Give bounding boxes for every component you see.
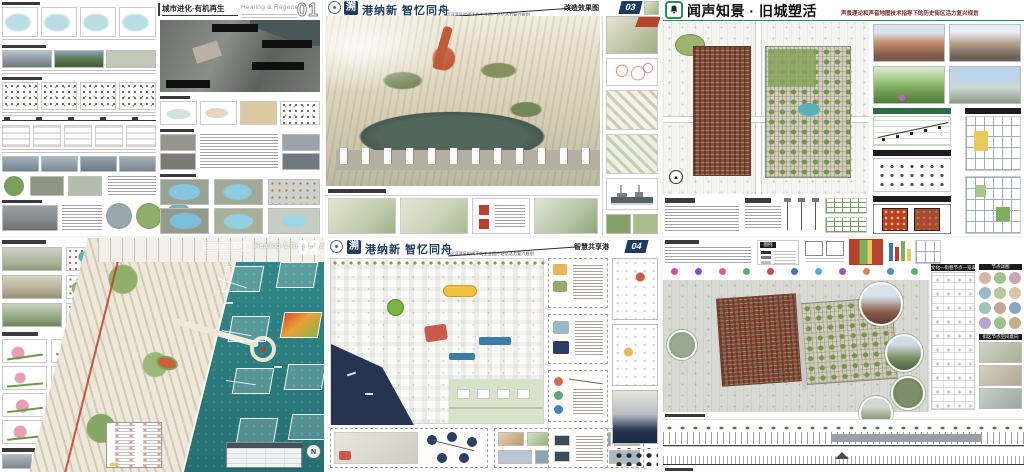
analysis-map-thumbnail: [2, 7, 38, 37]
site-highlight: [192, 40, 222, 63]
white-building: [477, 389, 490, 399]
map-pin: [815, 268, 822, 275]
map-pin: [887, 268, 894, 275]
board5-tag: 智慧共享港: [574, 242, 609, 252]
section-header: [2, 240, 46, 244]
title-divider: [158, 3, 160, 16]
node-circle: [979, 287, 991, 299]
detail-render-panel: [400, 198, 468, 234]
board5-title: 港纳新 智忆同舟: [365, 241, 453, 257]
street-network-map: [965, 176, 1021, 234]
mini-diagram: [95, 125, 123, 147]
city-view-sketch: [612, 258, 658, 320]
timeline-marker: [882, 138, 885, 141]
timeline-marker: [924, 129, 927, 132]
section-header: [2, 2, 40, 5]
timeline-line: [878, 122, 949, 138]
red-icon: [479, 219, 489, 229]
node-circle: [979, 272, 991, 284]
axon-thumb: [979, 342, 1022, 363]
screen-icon: [554, 435, 570, 446]
design-notes: [665, 206, 739, 232]
link-line: [569, 379, 603, 385]
axon-diagram: [606, 90, 658, 130]
lake-satellite-thumb: [160, 179, 209, 205]
industry-photo: [282, 153, 320, 170]
street-watercolor-photo: [949, 66, 1021, 104]
node-circle: [1009, 272, 1021, 284]
legend-swatch: [110, 463, 118, 466]
gate-callout-photo: [885, 334, 923, 372]
white-building: [497, 389, 510, 399]
detail-callout-heatmap: [280, 312, 323, 338]
node-circle: [994, 317, 1006, 329]
node-circle: [1009, 302, 1021, 314]
green-table: [825, 217, 867, 233]
persona-icon: [554, 391, 563, 400]
building-sketch: [498, 432, 524, 446]
ground-line: [663, 445, 1024, 446]
colored-plan-thumb: [849, 239, 883, 265]
diagram-icon: [553, 341, 569, 354]
section-header: [160, 174, 196, 177]
logo-dot: [333, 6, 336, 9]
section-header: [745, 198, 771, 203]
persona-icon: [554, 405, 563, 414]
panorama-photo: [2, 454, 32, 469]
highlight-parcel: [974, 131, 988, 151]
waterfront-towers: [340, 148, 590, 164]
tree-row: [331, 259, 545, 267]
section-sketch: [2, 366, 47, 390]
lake-satellite-thumb: [214, 208, 263, 234]
legend-title: 图例: [760, 242, 776, 248]
masterplan-drawing: ▲: [663, 22, 869, 194]
bamboo-watercolor-photo: [873, 66, 945, 104]
map-pin: [839, 268, 846, 275]
timeline-tick: [4, 117, 10, 121]
historic-block-west: [693, 46, 751, 176]
harbor-view-sketch: [612, 390, 658, 444]
timeline-tick: [36, 117, 42, 121]
north-arrow-icon: N: [306, 444, 321, 459]
node-circle: [979, 317, 991, 329]
building-photo: [2, 205, 58, 231]
screen-icon: [554, 451, 570, 462]
caption-text: [2, 39, 156, 42]
axon-header: 街区节点空间意向: [979, 334, 1022, 340]
zoning-map: [873, 204, 951, 234]
cargo-ship-icon: [609, 183, 655, 207]
house-sketch: [805, 241, 823, 256]
context-elevation-sketch: [663, 452, 1024, 466]
section-header: [2, 45, 46, 48]
diagram-notes: [573, 389, 603, 415]
waterfront-masterplan: 城市进化·有机再生 Healing & Regeneration 02 N: [98, 238, 324, 472]
dot-analysis-map: [2, 82, 38, 110]
sketch-diagram: [240, 101, 277, 125]
terrain-line: [7, 407, 43, 413]
indicator-list: [745, 206, 781, 228]
callout-label: [252, 62, 304, 70]
red-landmark: [424, 324, 448, 343]
board4-title-cn: 城市进化·有机再生: [204, 242, 250, 251]
red-icon: [479, 205, 489, 215]
node-circle: [1009, 317, 1021, 329]
icon-grid-header: [873, 150, 951, 156]
intro-paragraph: [665, 247, 751, 265]
street-sketch: [334, 432, 418, 464]
lake-map-thumb: [268, 179, 320, 205]
green-courtyard: [768, 49, 816, 87]
site-photo: [2, 50, 52, 68]
mini-diagram: [2, 125, 30, 147]
node-callout-photo: [667, 330, 697, 360]
board-3-soundscape-oldtown[interactable]: 闻声知景 · 旧城塑活 声景理论和声音地图技术指导下的历史街区活力复兴规划 ▲: [663, 0, 1024, 236]
diagram-notes: [573, 265, 603, 301]
legend-labels: [115, 425, 135, 467]
culture-table-body: [931, 272, 975, 410]
analysis-map-thumbnail: [119, 7, 156, 37]
detail-callout-plan: [236, 418, 279, 444]
red-axis-feature: [432, 26, 453, 71]
section-sketch: [2, 339, 47, 363]
greenery-thumb: [633, 214, 658, 234]
axon-thumb: [979, 365, 1022, 386]
satellite-thumbnail: [68, 176, 102, 196]
landscape-photo: [2, 247, 62, 271]
lake-satellite-thumb: [214, 179, 263, 205]
timeline-marker: [938, 126, 941, 129]
logo-frame: [665, 1, 683, 19]
street-watercolor-photo: [949, 24, 1021, 62]
board-4-healing-regeneration-sheet2[interactable]: 城市进化·有机再生 Healing & Regeneration 02 N: [0, 238, 324, 472]
sketch-diagram: [200, 101, 237, 125]
lamp-drawing: [801, 200, 802, 230]
anchor-ring-icon: [328, 1, 341, 14]
lamp-head: [812, 198, 819, 202]
caption-text: [2, 149, 156, 153]
nodes-header: 节点详图: [979, 264, 1022, 270]
street-scene-panel: [330, 428, 488, 468]
section-header: [328, 189, 386, 193]
diagram-notes: [576, 436, 603, 462]
node-circle: [994, 302, 1006, 314]
detail-callout-plan: [228, 316, 271, 342]
red-kiosk: [339, 451, 351, 460]
industry-photo: [160, 134, 196, 151]
timeline-tick: [132, 117, 138, 121]
indicator-table: [226, 442, 302, 468]
diagram-notes: [575, 321, 603, 357]
caption-text: [2, 112, 156, 116]
red-zone: [914, 208, 940, 231]
city-photo: [2, 156, 39, 172]
bar-chart-bar: [895, 247, 899, 261]
blue-label-chip: [449, 353, 475, 360]
sound-icon-grid: [873, 158, 951, 192]
device-diagram-panel: [548, 428, 608, 468]
section-header: [160, 96, 190, 99]
network-node: [447, 432, 457, 442]
greenery-thumb: [606, 214, 631, 234]
street-watercolor-photo: [873, 24, 945, 62]
icon-strip: [612, 448, 658, 466]
boat-mark: [274, 366, 282, 368]
node-circle: [994, 287, 1006, 299]
boat-mark: [365, 393, 373, 395]
board1-number: 01: [297, 0, 319, 21]
elevation-trees: [663, 424, 1024, 432]
column-divider: [602, 16, 603, 236]
mini-diagram: [64, 125, 92, 147]
lamp-head: [798, 198, 805, 202]
red-sketch-diagram: [606, 58, 658, 86]
ship-elevation-panel: [606, 178, 658, 210]
trees-callout-photo: [891, 376, 925, 410]
map-pin: [911, 268, 918, 275]
section-header: [2, 332, 38, 336]
bar-chart-bar: [907, 249, 911, 261]
detail-callout-plan: [222, 266, 265, 292]
board2-number: 03: [618, 1, 642, 14]
lamp-drawing: [815, 200, 816, 230]
red-zone: [882, 208, 908, 231]
render-thumbnail: [606, 16, 658, 54]
soundscape-timeline: [873, 116, 951, 146]
poster-collage: 城市进化·有机再生 Healing & Regeneration 01: [0, 0, 1024, 472]
lamp-head: [784, 198, 791, 202]
detail-render-panel: [328, 198, 396, 234]
birdseye-render: [326, 16, 600, 186]
legend-labels: [774, 251, 796, 264]
road-vertical: [755, 22, 762, 194]
timeline-tick: [68, 117, 74, 121]
timeline-marker: [910, 132, 913, 135]
axon-diagram: [606, 134, 658, 174]
strategy-diagram-panel: [548, 314, 608, 364]
detail-circle-photo: [106, 203, 132, 229]
network-node: [459, 453, 469, 463]
timeline-header: [873, 108, 951, 114]
landscape-photo: [2, 275, 62, 299]
timeline-marker: [896, 135, 899, 138]
network-maps-header: [965, 108, 1021, 114]
map-pin: [719, 268, 726, 275]
plan-legend: [106, 422, 162, 468]
pond: [798, 103, 820, 116]
board1-title-cn: 城市进化·有机再生: [162, 3, 238, 16]
timeline-tick: [100, 117, 106, 121]
aerial-photo: [106, 50, 156, 68]
anchor-ring-icon: [330, 240, 343, 253]
map-pin: [791, 268, 798, 275]
terrain-line: [7, 354, 43, 360]
path-line: [449, 407, 543, 409]
dot-analysis-map: [41, 82, 77, 110]
detail-circle-photo: [136, 203, 162, 229]
yellow-landmark: [443, 285, 477, 297]
dot-analysis-map: [119, 82, 156, 110]
bell-icon: [668, 4, 680, 16]
section-header: [160, 129, 194, 132]
industry-photo: [160, 153, 196, 170]
dot-analysis-map: [80, 82, 116, 110]
blue-label-chip: [479, 337, 511, 345]
axon-thumb: [979, 388, 1022, 409]
lake-map-thumb: [268, 208, 320, 234]
section-sketch: [2, 393, 47, 417]
table-body: [227, 448, 303, 469]
bar-chart-bar: [889, 243, 893, 261]
legend-swatch: [761, 256, 771, 259]
zoning-header: [873, 196, 951, 202]
board5-logo-character: 溯: [347, 240, 361, 254]
section-header: [2, 200, 42, 203]
terrain-line: [7, 382, 43, 387]
section-header: [2, 77, 42, 80]
culture-table-header: 文化—街巷节点一览表: [931, 264, 975, 271]
map-pin: [743, 268, 750, 275]
board4-number: 02: [298, 238, 321, 260]
paragraph-text: [200, 134, 278, 170]
legend-box: 图例: [757, 240, 799, 265]
persona-diagram-panel: [548, 370, 608, 422]
sketch-diagram: [160, 101, 197, 125]
caption-text: [805, 258, 844, 264]
green-table: [825, 198, 867, 214]
city-photo: [41, 156, 78, 172]
green-node: [387, 299, 404, 316]
diagram-icon: [553, 321, 569, 334]
corner-render-sliver: [644, 1, 659, 15]
analysis-map-thumbnail: [41, 7, 77, 37]
site-photo: [54, 50, 104, 68]
node-circle: [994, 272, 1006, 284]
caption-text: [2, 70, 156, 74]
node-circle: [979, 302, 991, 314]
street-elevation-drawing: [663, 419, 1024, 447]
house-sketch: [826, 241, 844, 256]
sketch-diagram: [280, 101, 320, 125]
diagram-notes: [495, 205, 525, 229]
mini-diagram: [126, 125, 156, 147]
ground-line: [663, 464, 1024, 465]
boat-mark: [347, 372, 356, 377]
detail-callout-plan: [284, 364, 324, 390]
analysis-map-thumbnail: [80, 7, 116, 37]
street-network-map: [965, 116, 1021, 171]
mini-diagram: [33, 125, 61, 147]
strategy-diagram-panel: [548, 258, 608, 308]
detail-render-panel: [534, 198, 598, 234]
elevation-label: [665, 468, 693, 471]
landscape-photo: [2, 303, 62, 327]
section-header: [665, 198, 695, 203]
historic-block-east: [765, 46, 851, 178]
city-photo: [80, 156, 117, 172]
network-node: [437, 453, 447, 463]
logo-dot: [335, 245, 338, 248]
board-2-harbor-renewal-sheet3[interactable]: 溯 港纳新 智忆同舟 运河湾区时代下的工业遗产记忆活力复兴规划 改造效果图 03: [326, 0, 660, 236]
persona-icon: [554, 377, 563, 386]
board2-logo-character: 溯: [344, 1, 358, 15]
callout-label: [166, 80, 210, 88]
legend-labels: [143, 425, 161, 467]
lake-satellite-thumb: [160, 208, 209, 234]
legend-swatch: [761, 251, 771, 254]
city-photo: [119, 156, 156, 172]
diagram-icon: [553, 264, 567, 275]
pagoda-callout-photo: [859, 282, 903, 326]
aerial-block-west: [716, 293, 802, 386]
highlight-parcel: [996, 207, 1010, 221]
boat-mark: [226, 302, 233, 304]
diagram-icon: [553, 281, 567, 292]
legend-swatch: [761, 261, 771, 264]
board-5-harbor-renewal-sheet4[interactable]: 溯 港纳新 智忆同舟 运河湾区时代下的工业遗产记忆活力复兴规划 智慧共享港 04: [328, 238, 660, 472]
detail-callout-plan: [276, 262, 319, 288]
board2-tag: 改造效果图: [564, 3, 599, 13]
white-building: [457, 389, 470, 399]
city-view-sketch: [612, 324, 658, 386]
pier-landmark: [261, 347, 266, 352]
paragraph-text: [62, 205, 102, 231]
satellite-thumbnail: [30, 176, 64, 196]
lamp-drawing: [787, 200, 788, 230]
title-subtext: [241, 14, 297, 18]
green-plan-circle: [4, 176, 24, 196]
node-circle: [1009, 287, 1021, 299]
callout-label: [262, 40, 312, 48]
detail-callout-plan: [288, 414, 324, 440]
board3-header: 闻声知景 · 旧城塑活 声景理论和声音地图技术指导下的历史街区活力复兴规划: [663, 0, 1024, 21]
map-pin: [863, 268, 870, 275]
road-section-band: [831, 434, 981, 442]
north-arrow-icon: ▲: [669, 170, 683, 184]
bar-chart-bar: [901, 241, 905, 261]
divider: [326, 195, 600, 196]
board3-subtitle: 声景理论和声音地图技术指导下的历史街区活力复兴规划: [841, 9, 979, 17]
white-building: [517, 389, 530, 399]
section-header: [665, 240, 699, 244]
callout-label: [212, 24, 258, 32]
diagram-panel: [472, 198, 530, 234]
handdrawn-axon-map: [330, 258, 544, 424]
pagoda-silhouette: [835, 452, 849, 459]
mini-grid-map: [915, 240, 941, 264]
map-pin: [767, 268, 774, 275]
red-roof: [635, 17, 660, 27]
harbor-water: [331, 335, 453, 425]
board-6-oldtown-aerial-sheet[interactable]: 图例: [663, 238, 1024, 472]
network-node: [467, 437, 477, 447]
campus-lawn: [449, 379, 543, 423]
paragraph-text: [108, 176, 156, 196]
map-pin: [671, 268, 678, 275]
map-pin: [695, 268, 702, 275]
board5-number: 04: [624, 240, 648, 253]
photo-thumb: [498, 450, 532, 464]
board-1-healing-regeneration-sheet1[interactable]: 城市进化·有机再生 Healing & Regeneration 01: [0, 0, 322, 236]
board3-title: 闻声知景 · 旧城塑活: [687, 1, 817, 21]
elevation-label: [665, 414, 705, 417]
industry-photo: [282, 134, 320, 151]
highlight-parcel: [976, 185, 986, 197]
